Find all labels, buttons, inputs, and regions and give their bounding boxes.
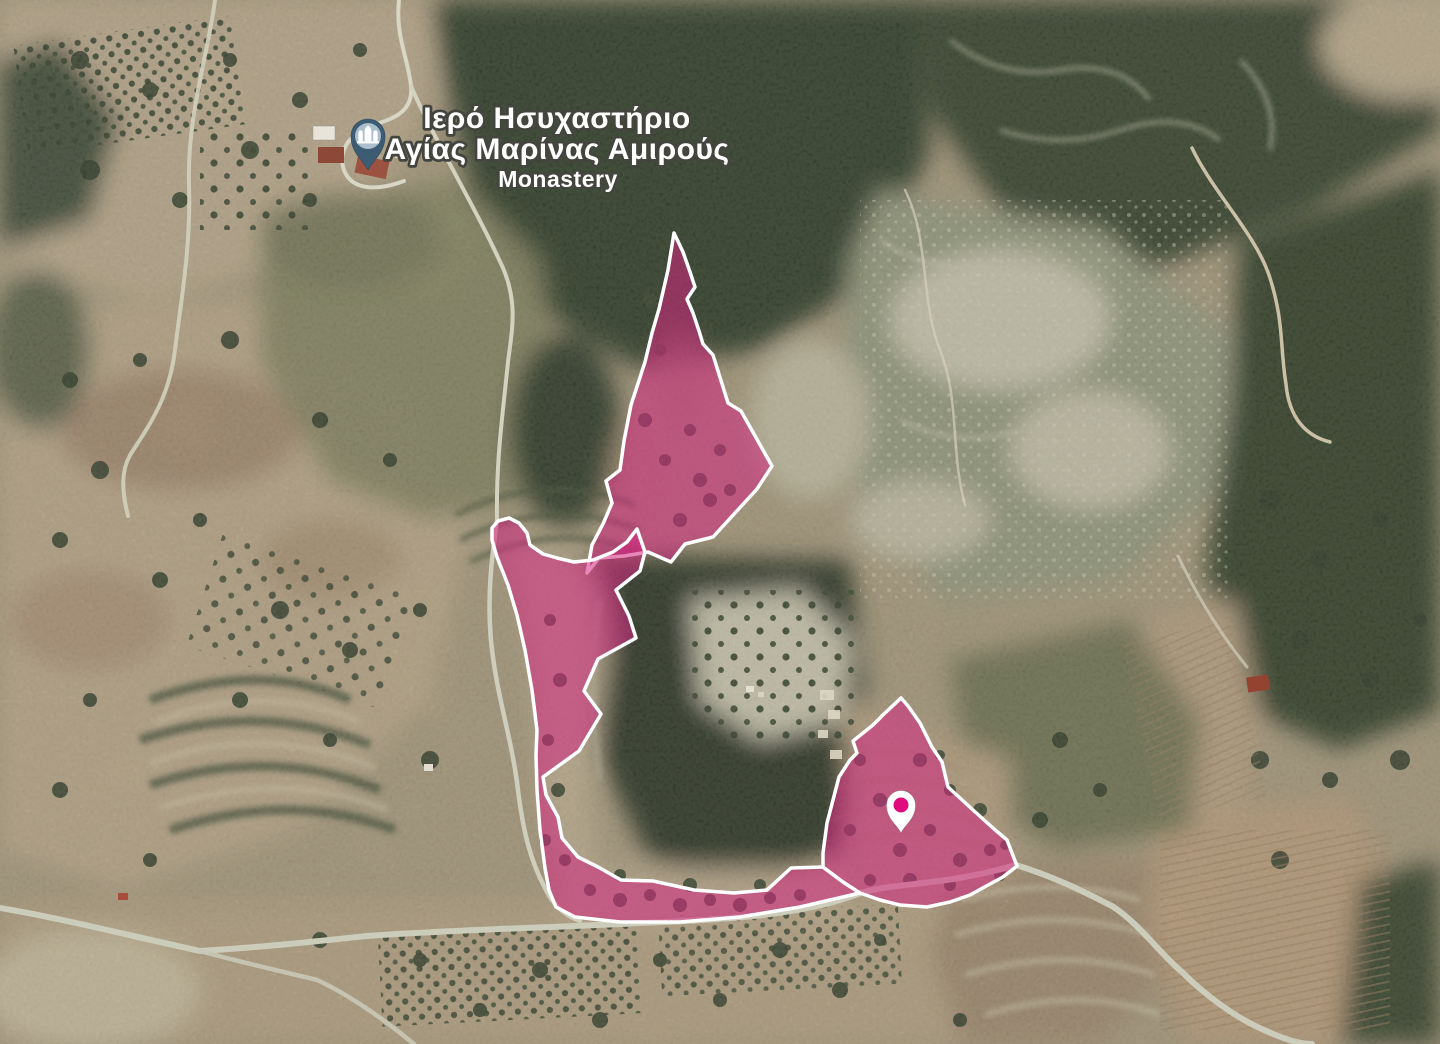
monastery-label-line1: Ιερό Ησυχαστήριο — [423, 102, 691, 135]
parcel-marker-dot — [894, 798, 909, 813]
monastery-label-line2: Αγίας Μαρίνας Αμιρούς — [384, 133, 729, 166]
monastery-label-category: Monastery — [498, 166, 618, 192]
satellite-map[interactable]: Ιερό Ησυχαστήριο Αγίας Μαρίνας Αμιρούς M… — [0, 0, 1440, 1044]
